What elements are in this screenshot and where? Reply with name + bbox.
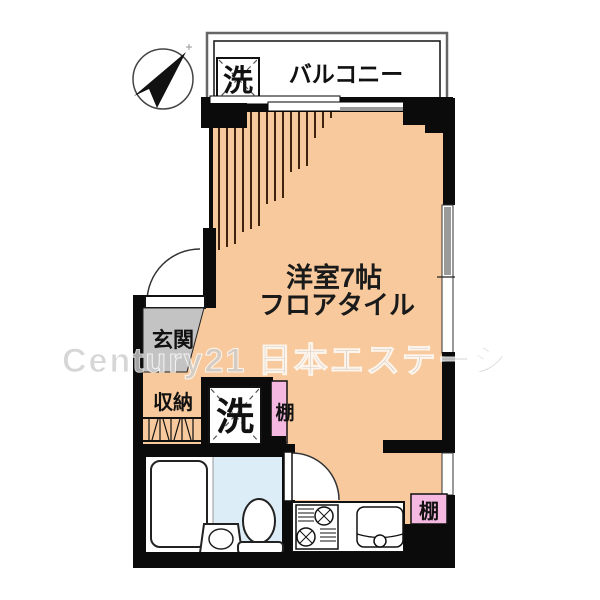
shelf-mid-label: 棚 bbox=[275, 401, 294, 424]
wall-bottom bbox=[133, 552, 455, 568]
window-top-shade bbox=[340, 107, 404, 111]
wall-corner-left bbox=[201, 103, 247, 128]
balcony-washer-label: 洗 bbox=[223, 65, 253, 98]
floor-type-label: フロアタイル bbox=[259, 290, 415, 320]
bathroom-area bbox=[133, 444, 295, 568]
entry-door-arc bbox=[147, 249, 200, 302]
balcony-area: 洗 バルコニー bbox=[207, 33, 447, 102]
floorplan-svg: 洗 バルコニー 玄関 収納 bbox=[0, 0, 600, 600]
wall-washer-left bbox=[201, 378, 209, 445]
wall-washer-right bbox=[261, 378, 271, 445]
balcony-label: バルコニー bbox=[289, 61, 404, 87]
entry-door-leaf bbox=[145, 296, 205, 308]
washbasin-bowl bbox=[209, 529, 233, 549]
watermark-text: Century21 日本エステージ bbox=[62, 342, 509, 380]
wall-stub-kitchen bbox=[383, 440, 455, 453]
storage-label: 収納 bbox=[153, 390, 193, 414]
floorplan-image: 洗 バルコニー 玄関 収納 bbox=[0, 0, 600, 600]
washer-label: 洗 bbox=[216, 397, 254, 439]
toilet-bowl bbox=[243, 499, 275, 543]
window-right-lower bbox=[442, 453, 453, 495]
sink-drain bbox=[374, 535, 386, 547]
room-name-label: 洋室7帖 bbox=[286, 262, 382, 293]
wall-left-thin bbox=[209, 110, 213, 230]
shelf-kitchen-label: 棚 bbox=[419, 499, 439, 523]
window-right-upper-shade bbox=[444, 207, 451, 275]
compass-icon bbox=[133, 44, 193, 109]
bathroom-door-leaf bbox=[284, 452, 292, 501]
compass-sparkle bbox=[186, 44, 192, 50]
bathtub bbox=[151, 461, 207, 547]
